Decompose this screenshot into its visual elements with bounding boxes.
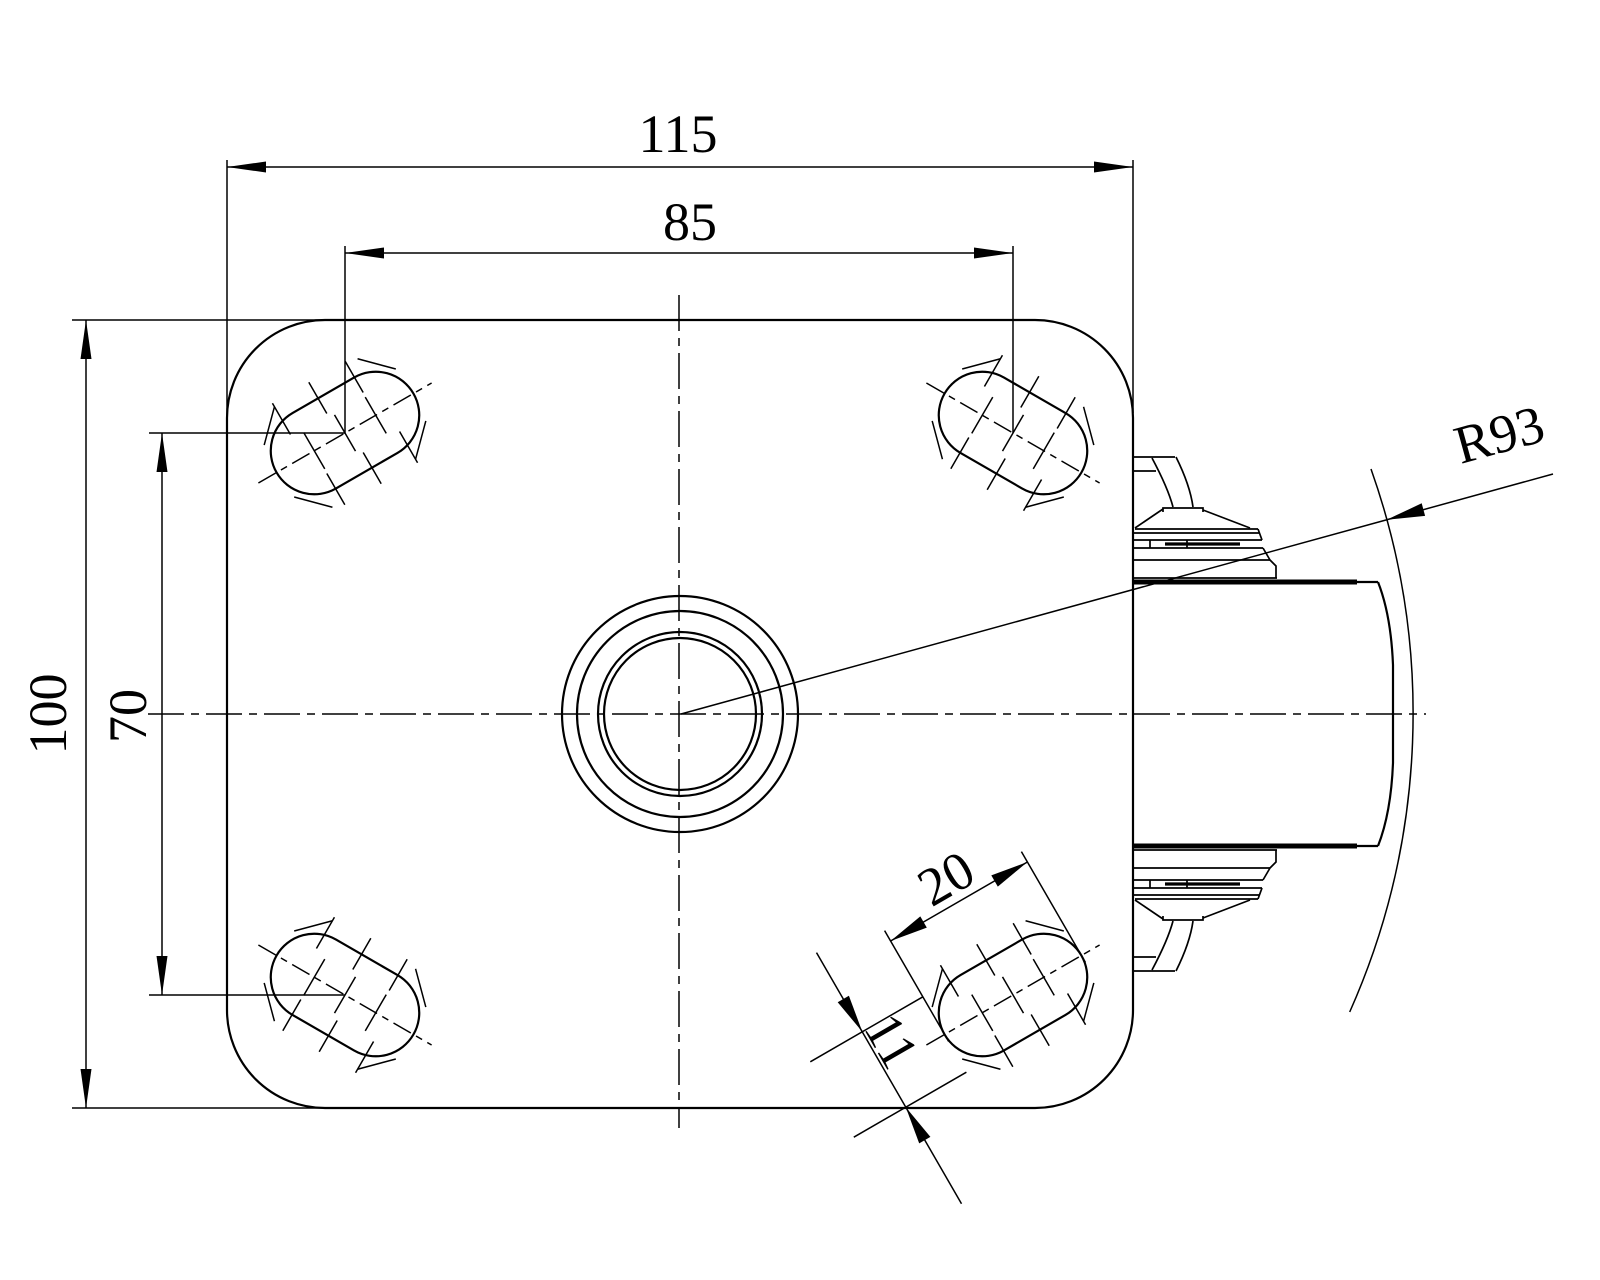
arrowhead — [345, 248, 384, 259]
arrowhead — [157, 433, 168, 472]
arrowhead — [891, 916, 927, 941]
swivel-bearing-bottom — [1133, 850, 1277, 971]
arrowhead — [991, 862, 1027, 887]
dim-label-slot-length: 20 — [908, 839, 985, 918]
drawing-canvas: 115 85 100 70 20 11 — [0, 0, 1600, 1280]
dim-label-hole-spacing-width: 85 — [663, 192, 717, 252]
dimension-slot-width: 11 — [810, 953, 966, 1204]
arrowhead — [838, 996, 863, 1032]
arrowhead — [227, 162, 266, 173]
arrowhead — [1387, 503, 1425, 519]
swivel-bearing-top — [1133, 457, 1277, 578]
dimension-plate-width: 115 — [227, 104, 1133, 419]
dim-label-plate-height: 100 — [18, 674, 78, 755]
technical-drawing: 115 85 100 70 20 11 — [0, 0, 1600, 1280]
arrowhead — [974, 248, 1013, 259]
arrowhead — [81, 1069, 92, 1108]
dimension-swivel-radius: R93 — [681, 394, 1553, 714]
plate-top-view — [148, 295, 1426, 1128]
arrowhead — [906, 1107, 931, 1143]
dim-label-slot-width: 11 — [853, 1003, 931, 1078]
dim-label-swivel-radius: R93 — [1448, 394, 1551, 476]
arrowhead — [1094, 162, 1133, 173]
dim-label-hole-spacing-height: 70 — [98, 689, 158, 743]
mounting-slot-bottom-right — [895, 891, 1130, 1098]
wheel-side-view — [1133, 457, 1413, 1012]
swivel-radius-arc — [1350, 469, 1413, 1012]
arrowhead — [81, 320, 92, 359]
dim-label-plate-width: 115 — [639, 104, 718, 164]
arrowhead — [157, 956, 168, 995]
